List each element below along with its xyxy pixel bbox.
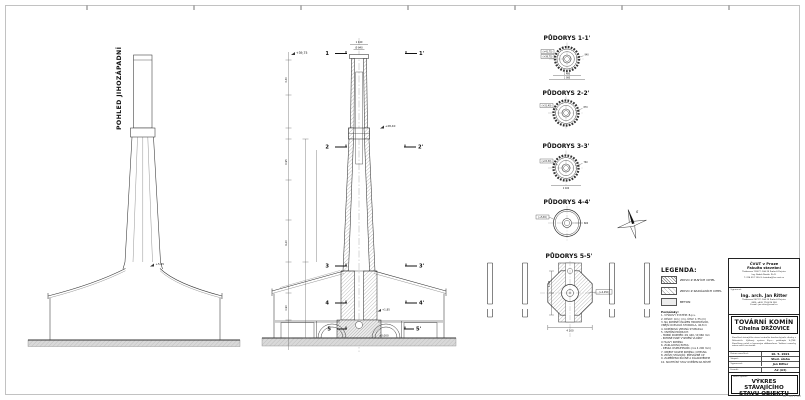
- author-section: Vypracoval: Ing. arch. Jan Ritter Thákur…: [729, 288, 799, 314]
- cut-1p: 1': [419, 51, 425, 57]
- section-level-ground: ±0,000: [379, 334, 389, 338]
- row-value: A2 (A3): [761, 368, 799, 372]
- plan1-below1: 1 480: [564, 73, 571, 76]
- plan1-title: PŮDORYS 1-1': [543, 35, 590, 42]
- section-dim-3: 4,90: [284, 305, 288, 311]
- plan1-left1: (+41,75): [543, 51, 553, 54]
- section-dim-2: 9,20: [284, 240, 288, 246]
- university-section: ČVUT v Praze Fakulta stavební Thákurova …: [729, 259, 799, 288]
- section-dim-inner: Ø 940: [355, 46, 363, 49]
- plan5-dim-bottom: 4 200: [566, 328, 574, 332]
- plan5-dim-left: 1 700: [548, 280, 551, 287]
- section-dim-outer: 1 440: [356, 41, 363, 44]
- section-level-top: +39,75: [296, 51, 307, 55]
- section-level-attic: +1,85: [382, 307, 390, 311]
- plan-views: PŮDORYS 1-1' (+41,75) (+39,75) 940 1 480…: [488, 35, 651, 337]
- sheet-format-note: A2 · 594 × 420: [783, 395, 801, 398]
- table-row: Formát: A2 (A3): [729, 368, 799, 372]
- plan5-title: PŮDORYS 5-5': [545, 253, 592, 260]
- notes-list: 1. VÝŠKOVÝ SYSTÉM: B.p.v. 2. DÉLKY: mm |…: [661, 314, 729, 363]
- plan3-below1: 2 400: [563, 187, 570, 190]
- section-dim-0: 3,30: [284, 77, 288, 83]
- section-view: 1 440 Ø 940: [262, 38, 456, 352]
- section-level-collar: +28,40: [385, 124, 396, 128]
- hatch-concrete-swatch: [661, 298, 677, 306]
- project-subtitle: Cihelna DRŽOVICE: [732, 326, 797, 332]
- project-title-box: TOVÁRNÍ KOMÍN Cihelna DRŽOVICE: [731, 316, 798, 334]
- plan2-title: PŮDORYS 2-2': [542, 90, 589, 97]
- plan4-title: PŮDORYS 4-4': [543, 199, 590, 206]
- cut-3: 3: [325, 264, 329, 270]
- drawing-title-label: Název výkresu:: [733, 376, 748, 378]
- legend-item: ZDIVO Z RADIÁLNÍCH CIHEL: [661, 287, 729, 295]
- legend-item: ZDIVO Z PLNÝCH CIHEL: [661, 276, 729, 284]
- plan4-left1: (+5,65): [538, 216, 547, 219]
- cut-2: 2: [325, 145, 329, 151]
- north-arrow-icon: [614, 206, 651, 243]
- legend-item-label: ZDIVO Z PLNÝCH CIHEL: [680, 278, 715, 282]
- cut-4: 4: [325, 301, 329, 307]
- row-label: Vypracoval:: [729, 363, 761, 365]
- university-address: Thákurova 7/2077, 166 29 Praha 6 Dejvice…: [729, 271, 799, 279]
- faculty-name: Fakulta stavební: [729, 266, 799, 270]
- elevation-level-label: +5,65: [156, 262, 165, 266]
- author-address: Thákurova 2077/7, 166 29 Praha 6 Dejvice…: [729, 299, 799, 307]
- row-value: Jan Ritter: [761, 362, 799, 366]
- cut-5p: 5': [416, 327, 422, 333]
- plan1-left2: (+39,75): [543, 56, 553, 59]
- plan3-right: 760: [584, 161, 589, 164]
- cut-1: 1: [325, 51, 329, 57]
- plan1-below2: 1 980: [564, 77, 571, 80]
- elevation-view: POHLED JIHOZÁPADNÍ +5,65: [28, 46, 240, 346]
- title-block: ČVUT v Praze Fakulta stavební Thákurova …: [728, 258, 800, 396]
- north-label: S: [636, 210, 639, 214]
- project-description: Zaměření stávajícího stavu továrního kom…: [729, 336, 799, 352]
- plan5-box-right: (+0,450): [599, 291, 609, 294]
- drawing-title-box: Název výkresu: VÝKRES STÁVAJÍCÍHO STAVU …: [731, 375, 798, 394]
- row-label: Datum zaměření:: [729, 353, 761, 355]
- row-label: Stupeň:: [729, 358, 761, 360]
- plan3-title: PŮDORYS 3-3': [542, 143, 589, 150]
- elevation-title: POHLED JIHOZÁPADNÍ: [114, 46, 123, 130]
- legend-item: BETON: [661, 298, 729, 306]
- legend-item-label: ZDIVO Z RADIÁLNÍCH CIHEL: [680, 289, 722, 293]
- cut-4p: 4': [419, 301, 425, 307]
- plan1-right: 940: [585, 53, 590, 56]
- plan4-right: 600: [584, 222, 589, 225]
- cut-5: 5: [327, 327, 331, 333]
- author-label: Vypracoval:: [731, 289, 742, 291]
- row-value: Stud. úloha: [761, 357, 799, 361]
- cut-2p: 2': [418, 145, 424, 151]
- plan3-left1: (+15,30): [542, 160, 552, 163]
- legend-panel: LEGENDA: ZDIVO Z PLNÝCH CIHEL ZDIVO Z RA…: [661, 267, 729, 364]
- row-label: Formát:: [729, 369, 761, 371]
- plan2-right: 870: [584, 106, 589, 109]
- author-name: Ing. arch. Jan Ritter: [729, 293, 799, 298]
- hatch-radial-brick-swatch: [661, 287, 677, 295]
- info-table: Datum zaměření: 10. 5. 2021 Stupeň: Stud…: [729, 352, 799, 374]
- section-dim-1: 6,95: [284, 159, 288, 165]
- legend-title: LEGENDA:: [661, 267, 729, 274]
- cut-3p: 3': [419, 264, 425, 270]
- hatch-solid-brick-swatch: [661, 276, 677, 284]
- legend-item-label: BETON: [680, 300, 690, 304]
- plan2-left1: (+31,40): [542, 105, 552, 108]
- row-value: 10. 5. 2021: [761, 352, 799, 356]
